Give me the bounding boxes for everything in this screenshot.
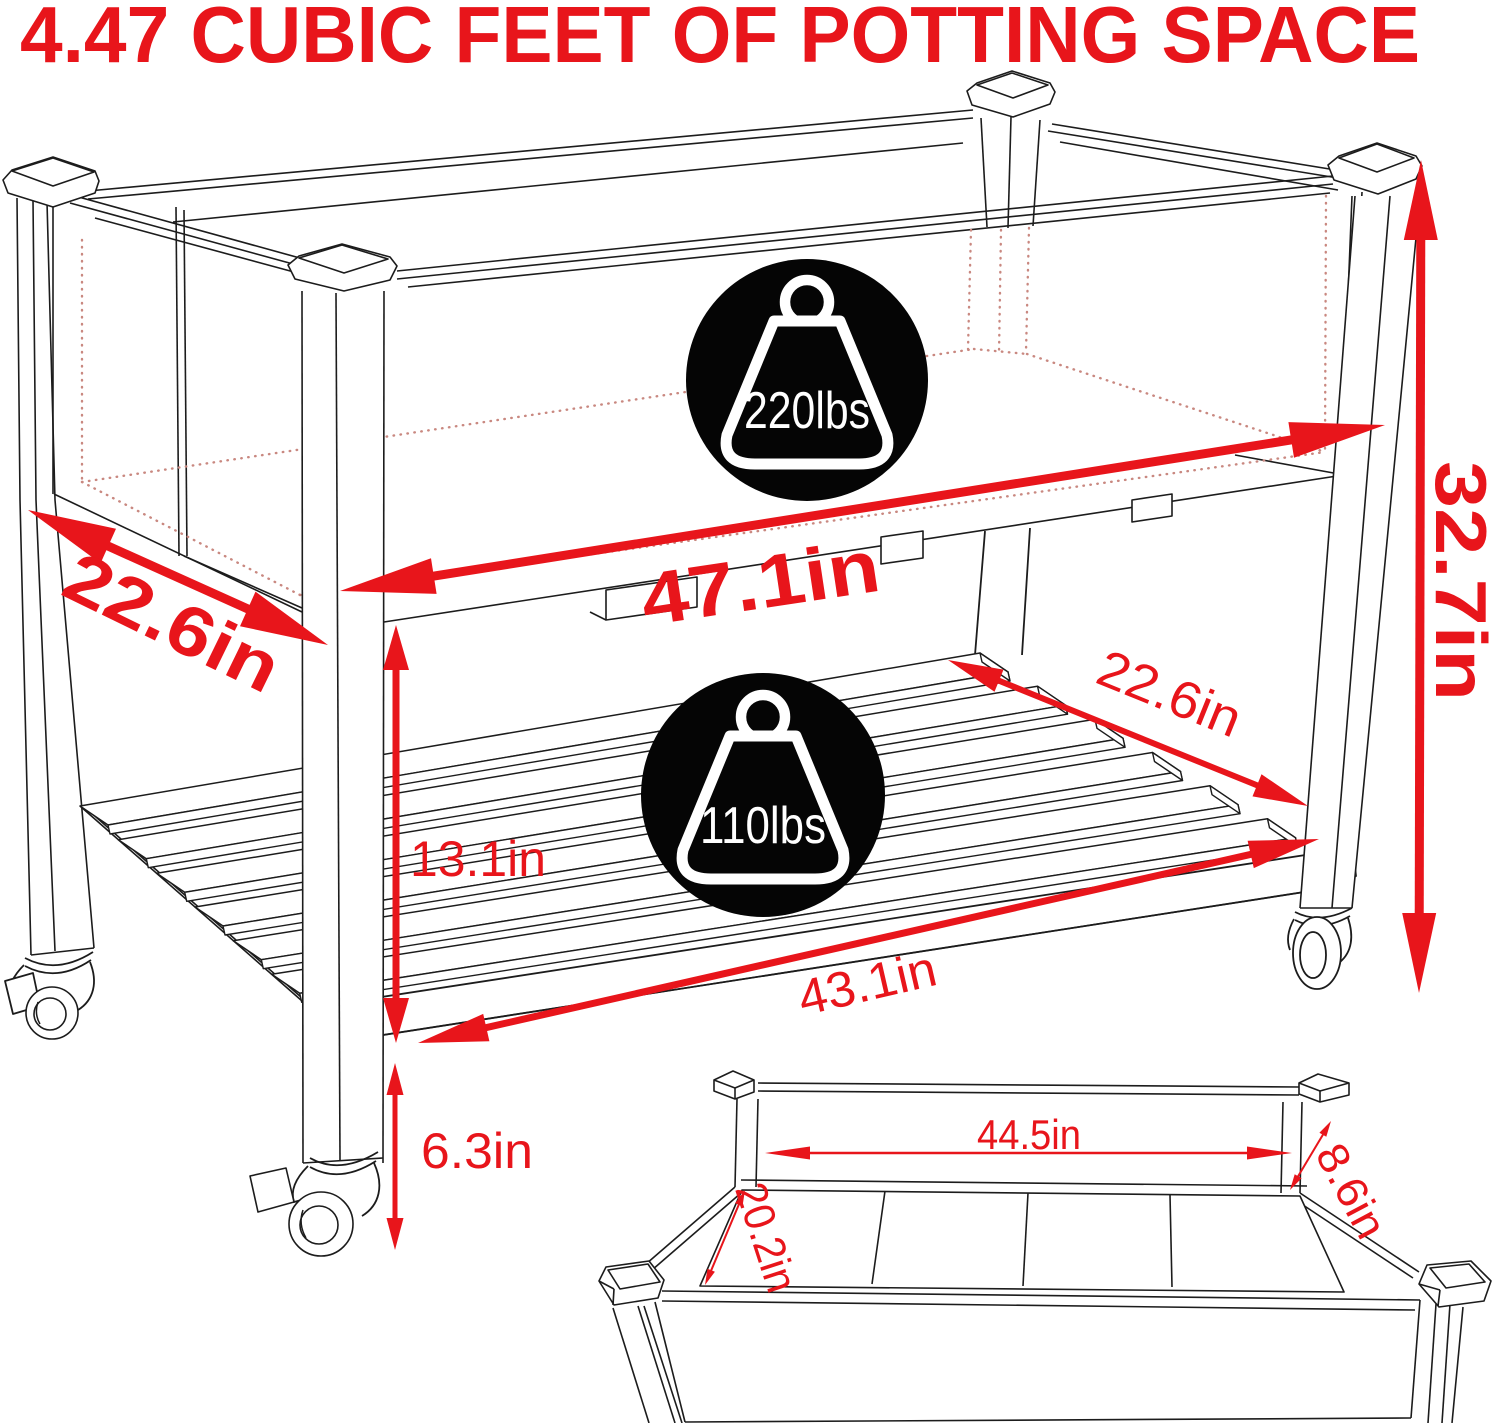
svg-text:6.3in: 6.3in [421,1123,533,1179]
svg-text:13.1in: 13.1in [410,831,546,887]
svg-text:110lbs: 110lbs [700,797,826,855]
svg-text:44.5in: 44.5in [977,1111,1081,1158]
svg-text:32.7in: 32.7in [1420,461,1500,701]
svg-text:220lbs: 220lbs [744,382,870,440]
svg-text:4.47 CUBIC FEET OF POTTING SPA: 4.47 CUBIC FEET OF POTTING SPACE [20,0,1420,79]
